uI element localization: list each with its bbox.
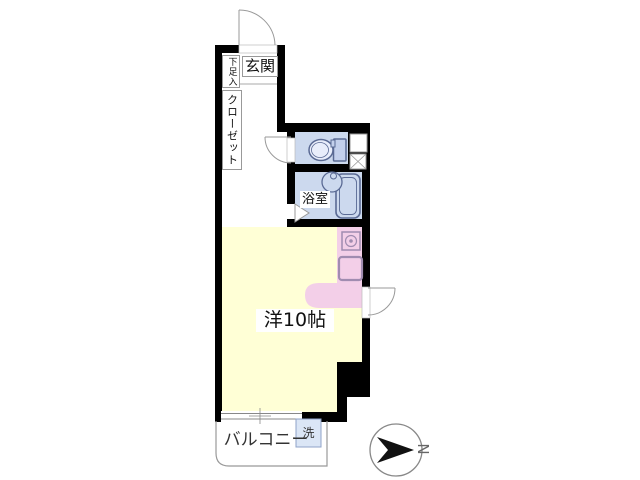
toilet-icon bbox=[309, 139, 346, 161]
room-door-frame bbox=[362, 287, 370, 318]
entrance-door-arc bbox=[239, 10, 275, 45]
shoe-storage-label: 下足入 bbox=[222, 55, 240, 88]
stove-icon bbox=[342, 232, 360, 250]
main-room-label: 洋10帖 bbox=[256, 309, 334, 332]
entrance-label: 玄関 bbox=[242, 56, 278, 77]
floor-plan-drawing bbox=[0, 0, 640, 480]
kitchen-sink-icon bbox=[339, 257, 362, 280]
compass-north-label: N bbox=[414, 440, 432, 458]
entrance-door-frame bbox=[239, 45, 277, 53]
floor-plan: 玄関 下足入 クローゼット 浴室 洋10帖 バルコニー 洗 N bbox=[0, 0, 640, 480]
washer-label: 洗 bbox=[296, 419, 321, 447]
toilet-door-frame bbox=[287, 138, 295, 162]
bathroom-label: 浴室 bbox=[300, 191, 330, 208]
ps-shelf-box bbox=[350, 134, 367, 152]
ps-box bbox=[350, 154, 366, 169]
room-door-arc bbox=[368, 288, 395, 315]
washbasin-icon bbox=[322, 172, 342, 192]
closet-label: クローゼット bbox=[222, 90, 242, 170]
